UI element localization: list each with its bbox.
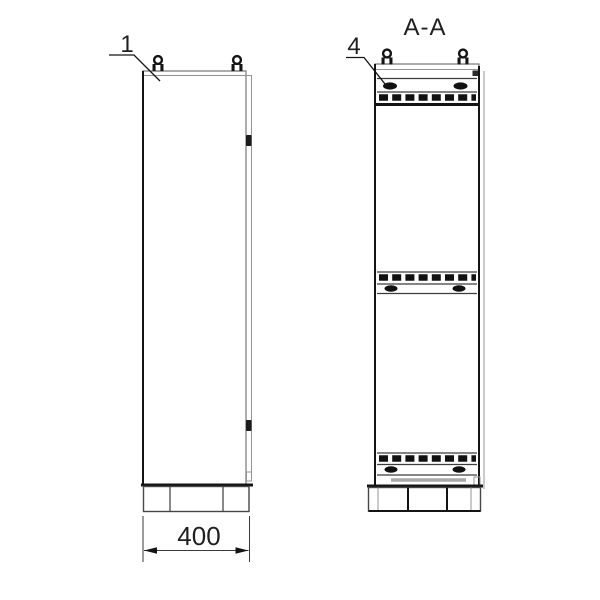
section-plinth-base (367, 486, 483, 511)
drawing-svg: 400 1 A-A (0, 0, 600, 600)
section-title: A-A (403, 14, 446, 41)
section-cabinet-body (375, 64, 484, 489)
dimension-arrow-left (144, 547, 157, 554)
dimension-value: 400 (177, 521, 220, 551)
plinth-base (144, 487, 250, 512)
eyebolt-nub (239, 64, 242, 71)
section-eyebolt-left (382, 50, 393, 65)
callout-1-label: 1 (120, 31, 133, 58)
cabinet-body (141, 71, 253, 485)
eyebolt-ring (154, 56, 162, 64)
callout-1: 1 (109, 31, 160, 81)
dimension-arrow-right (236, 547, 249, 554)
eyebolt-ring (233, 56, 241, 64)
bolt-head-left (385, 466, 398, 472)
cabinet-face (143, 71, 246, 485)
eyebolt-nub (465, 58, 468, 65)
bolt-head-left (385, 285, 398, 291)
technical-drawing-canvas: 400 1 A-A (0, 0, 600, 600)
plinth-outline (144, 487, 250, 512)
eyebolt-nub (458, 58, 461, 65)
hinge-mark-upper (246, 135, 252, 146)
section-eyebolt-right (458, 50, 469, 65)
bolt-head-right (453, 466, 466, 472)
eyebolt-nub (382, 58, 385, 65)
lifting-eyebolt-right (232, 56, 243, 71)
plinth-outline (369, 488, 481, 512)
eyebolt-nub (160, 64, 163, 71)
lifting-eyebolt-left (153, 56, 164, 71)
width-dimension: 400 (143, 516, 250, 562)
callout-4-label: 4 (347, 33, 360, 60)
eyebolt-ring (459, 50, 467, 58)
corner-gusset (247, 472, 252, 481)
bolt-head-right (454, 82, 468, 89)
section-view-aa: A-A (346, 14, 484, 511)
side-view: 400 1 (109, 31, 253, 562)
eyebolt-nub (153, 64, 156, 71)
eyebolt-ring (383, 50, 391, 58)
eyebolt-nub (232, 64, 235, 71)
hinge-mark-lower (246, 420, 252, 431)
eyebolt-nub (389, 58, 392, 65)
corner-bracket (473, 71, 479, 77)
bolt-head-right (453, 285, 466, 291)
